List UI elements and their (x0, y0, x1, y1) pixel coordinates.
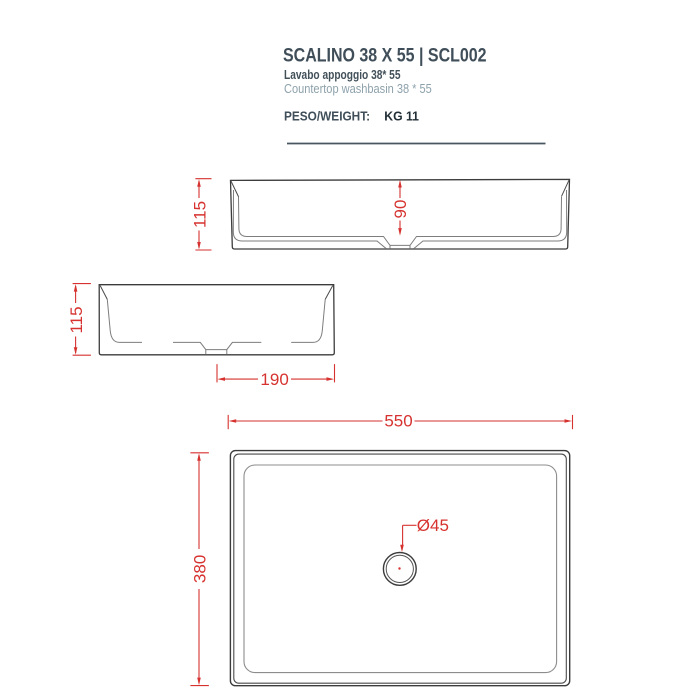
svg-text:KG 11: KG 11 (384, 108, 419, 124)
svg-text:SCALINO 38 X 55 | SCL002: SCALINO 38 X 55 | SCL002 (283, 44, 487, 66)
svg-text:115: 115 (67, 306, 86, 333)
svg-text:90: 90 (391, 200, 410, 219)
svg-text:Ø45: Ø45 (417, 516, 449, 535)
svg-text:380: 380 (191, 555, 210, 583)
svg-text:550: 550 (384, 411, 412, 430)
svg-text:Countertop washbasin 38 * 55: Countertop washbasin 38 * 55 (284, 81, 432, 96)
svg-text:PESO/WEIGHT:: PESO/WEIGHT: (284, 109, 370, 124)
svg-text:115: 115 (190, 201, 209, 228)
svg-text:190: 190 (260, 370, 288, 389)
